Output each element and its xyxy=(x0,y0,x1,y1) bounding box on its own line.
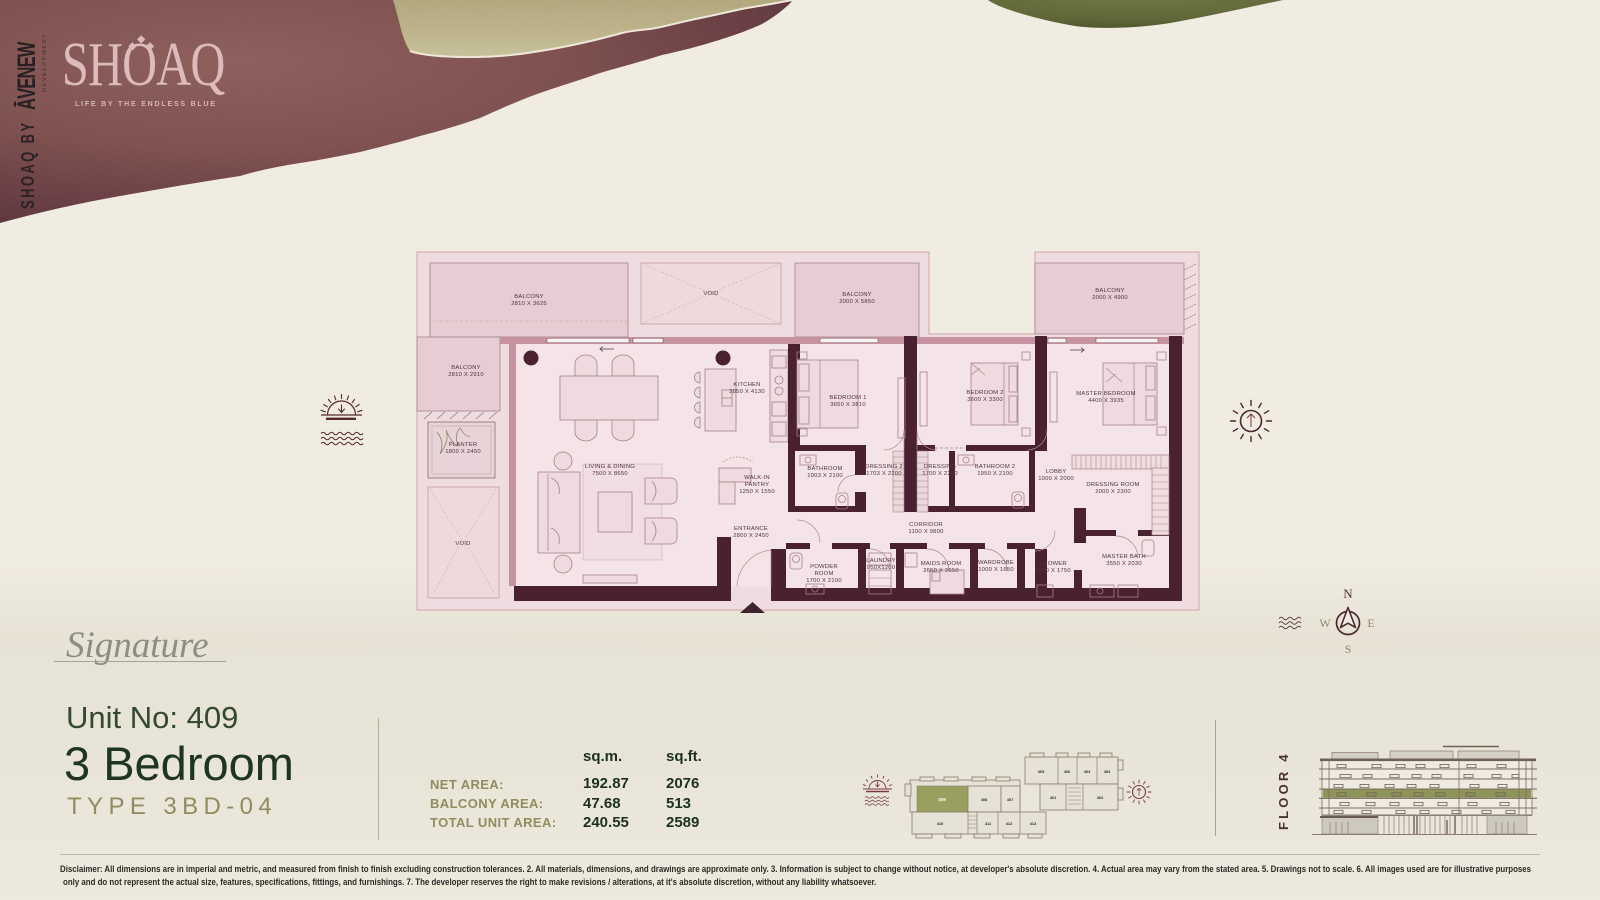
svg-text:2000 X 5850: 2000 X 5850 xyxy=(839,299,875,305)
svg-text:402: 402 xyxy=(1097,795,1104,800)
svg-text:LAUNDRY: LAUNDRY xyxy=(866,558,895,564)
svg-text:404: 404 xyxy=(1084,769,1091,774)
svg-text:2850 X 4130: 2850 X 4130 xyxy=(729,389,765,395)
svg-text:BATHROOM 2: BATHROOM 2 xyxy=(975,464,1016,470)
svg-text:SHOAQ BY: SHOAQ BY xyxy=(18,120,39,209)
svg-text:ĀVENEW: ĀVENEW xyxy=(14,42,41,110)
svg-text:1000 X 2000: 1000 X 2000 xyxy=(1038,476,1074,482)
svg-text:DRESSING: DRESSING xyxy=(924,464,957,470)
svg-text:1003 X 2100: 1003 X 2100 xyxy=(807,473,843,479)
svg-text:BEDROOM 1: BEDROOM 1 xyxy=(829,395,866,401)
svg-text:BATHROOM: BATHROOM xyxy=(807,466,842,472)
svg-text:DRESSING ROOM: DRESSING ROOM xyxy=(1086,482,1139,488)
svg-text:BALCONY: BALCONY xyxy=(1095,288,1125,294)
svg-text:BEDROOM 2: BEDROOM 2 xyxy=(966,390,1003,396)
svg-text:CORRIDOR: CORRIDOR xyxy=(909,522,943,528)
svg-text:LIVING & DINING: LIVING & DINING xyxy=(585,464,635,470)
svg-text:3550 X 2030: 3550 X 2030 xyxy=(1106,561,1142,567)
svg-text:405: 405 xyxy=(1038,769,1045,774)
svg-text:1700 X 2200: 1700 X 2200 xyxy=(922,471,958,477)
svg-text:1100 X 9800: 1100 X 9800 xyxy=(908,529,944,535)
svg-text:MAIDS ROOM: MAIDS ROOM xyxy=(921,561,962,567)
svg-text:413: 413 xyxy=(1030,821,1037,826)
svg-text:W: W xyxy=(1319,616,1331,630)
svg-text:VOID: VOID xyxy=(455,541,470,547)
svg-text:PLANTER: PLANTER xyxy=(449,442,478,448)
svg-text:1700 X 2100: 1700 X 2100 xyxy=(806,578,842,584)
svg-text:WALK-IN: WALK-IN xyxy=(744,475,770,481)
svg-text:DRESSING 2: DRESSING 2 xyxy=(865,464,903,470)
svg-text:412: 412 xyxy=(1006,821,1013,826)
svg-text:MASTER BATH: MASTER BATH xyxy=(1102,554,1146,560)
svg-text:410: 410 xyxy=(937,821,944,826)
svg-text:ENTRANCE: ENTRANCE xyxy=(734,526,768,532)
svg-text:N: N xyxy=(1343,586,1353,601)
svg-text:407: 407 xyxy=(1007,797,1014,802)
svg-text:PANTRY: PANTRY xyxy=(745,482,770,488)
svg-text:BALCONY: BALCONY xyxy=(514,294,544,300)
svg-text:POWDER: POWDER xyxy=(810,564,838,570)
svg-text:1800 X 2450: 1800 X 2450 xyxy=(445,449,481,455)
svg-text:E: E xyxy=(1367,616,1374,630)
svg-text:406: 406 xyxy=(1064,769,1071,774)
svg-text:2800 X 2450: 2800 X 2450 xyxy=(733,533,769,539)
svg-text:MASTER BEDROOM: MASTER BEDROOM xyxy=(1076,391,1135,397)
svg-text:950X1200: 950X1200 xyxy=(867,565,896,571)
svg-text:2650 X 2650: 2650 X 2650 xyxy=(923,568,959,574)
svg-text:VOID: VOID xyxy=(703,291,718,297)
svg-text:3600 X 3300: 3600 X 3300 xyxy=(967,397,1003,403)
svg-text:4400 X 3935: 4400 X 3935 xyxy=(1088,398,1124,404)
svg-text:7500 X 8650: 7500 X 8650 xyxy=(592,471,628,477)
svg-text:411: 411 xyxy=(985,821,992,826)
svg-text:LOBBY: LOBBY xyxy=(1046,469,1067,475)
svg-text:1703 X 2200: 1703 X 2200 xyxy=(866,471,902,477)
svg-text:S: S xyxy=(1345,642,1352,656)
svg-text:2810 X 3625: 2810 X 3625 xyxy=(511,301,547,307)
svg-text:BALCONY: BALCONY xyxy=(842,292,872,298)
svg-text:1000 X 1650: 1000 X 1650 xyxy=(978,567,1014,573)
svg-text:ROOM: ROOM xyxy=(814,571,833,577)
svg-text:DEVELOPMENT: DEVELOPMENT xyxy=(42,33,48,92)
svg-text:2810 X 2910: 2810 X 2910 xyxy=(448,372,484,378)
svg-text:408: 408 xyxy=(981,797,988,802)
svg-text:409: 409 xyxy=(938,797,946,802)
svg-text:3650 X 3810: 3650 X 3810 xyxy=(830,402,866,408)
svg-text:WARDROBE: WARDROBE xyxy=(978,560,1014,566)
svg-text:BALCONY: BALCONY xyxy=(451,365,481,371)
svg-text:401: 401 xyxy=(1050,795,1057,800)
svg-text:1210 X 1750: 1210 X 1750 xyxy=(1035,568,1071,574)
svg-text:KITCHEN: KITCHEN xyxy=(733,382,760,388)
svg-text:403: 403 xyxy=(1104,769,1111,774)
svg-text:2000 X 2300: 2000 X 2300 xyxy=(1095,489,1131,495)
svg-text:1950 X 2100: 1950 X 2100 xyxy=(977,471,1013,477)
svg-text:2000 X 4900: 2000 X 4900 xyxy=(1092,295,1128,301)
svg-text:SHOWER: SHOWER xyxy=(1039,561,1067,567)
svg-text:1250 X 1550: 1250 X 1550 xyxy=(739,489,775,495)
